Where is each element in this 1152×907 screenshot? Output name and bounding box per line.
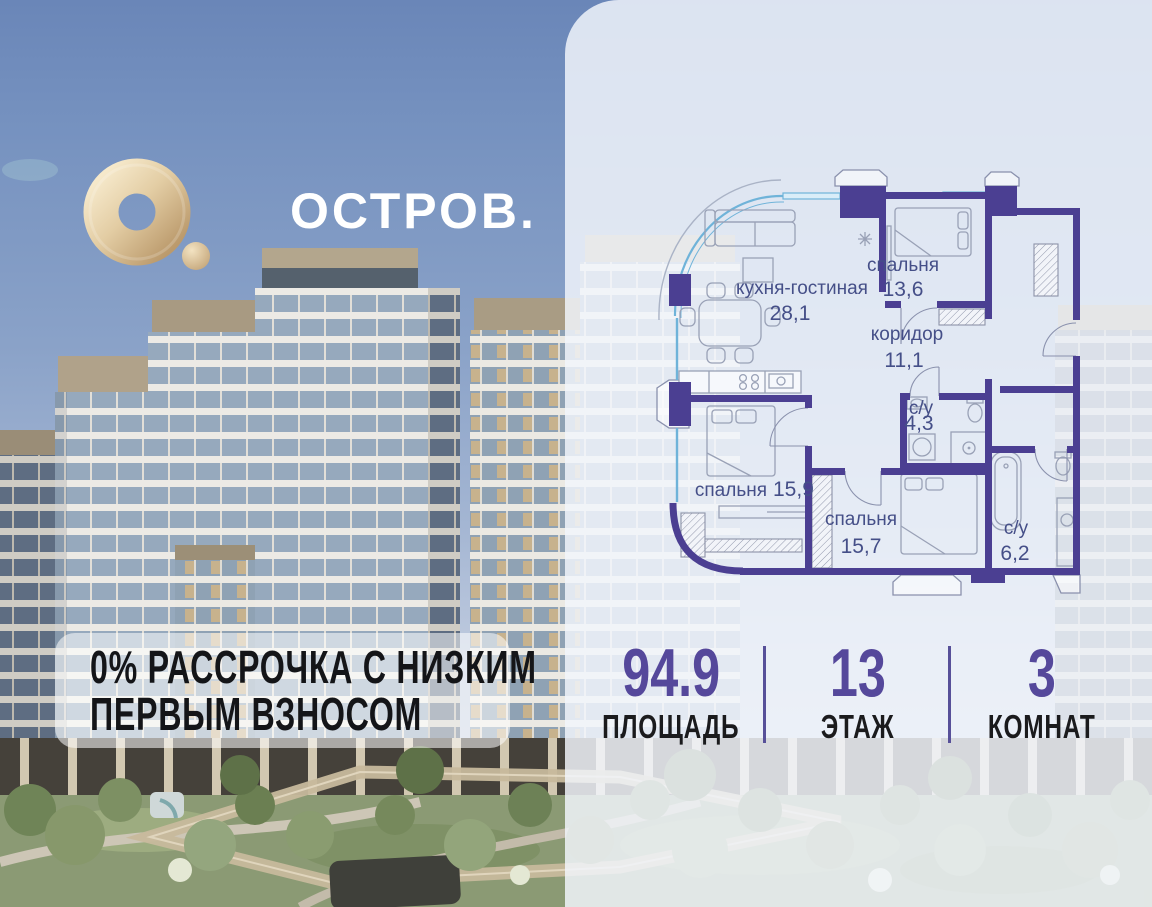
promo-line-1: 0% РАССРОЧКА С НИЗКИМ bbox=[90, 643, 537, 691]
room-area: 15,7 bbox=[841, 535, 882, 558]
stat-rooms: 3 КОМНАТ bbox=[951, 640, 1133, 755]
promo-line-2: ПЕРВЫМ ВЗНОСОМ bbox=[90, 690, 422, 738]
stat-area-value: 94.9 bbox=[622, 640, 720, 706]
room-label: спальня bbox=[695, 480, 767, 501]
stat-floor-label: ЭТАЖ bbox=[821, 709, 894, 745]
room-label: спальня bbox=[825, 509, 897, 530]
stat-floor-value: 13 bbox=[829, 640, 885, 706]
floor-plan: кухня-гостиная 28,1 спальня 13,6 коридор… bbox=[655, 168, 1089, 602]
promo-card: 0% РАССРОЧКА С НИЗКИМ ПЕРВЫМ ВЗНОСОМ bbox=[55, 633, 510, 748]
stats-row: 94.9 ПЛОЩАДЬ 13 ЭТАЖ 3 КОМНАТ bbox=[578, 640, 1133, 755]
room-area: 28,1 bbox=[770, 302, 811, 325]
stat-area: 94.9 ПЛОЩАДЬ bbox=[578, 640, 763, 755]
room-label: спальня bbox=[867, 255, 939, 276]
logo-text: ОСТРОВ. bbox=[290, 182, 537, 240]
room-area: 13,6 bbox=[883, 278, 924, 301]
room-area: 11,1 bbox=[884, 349, 923, 372]
stat-rooms-value: 3 bbox=[1028, 640, 1056, 706]
stat-floor: 13 ЭТАЖ bbox=[766, 640, 948, 755]
stat-area-label: ПЛОЩАДЬ bbox=[602, 709, 739, 745]
logo-ring-icon bbox=[82, 156, 222, 276]
stat-rooms-label: КОМНАТ bbox=[988, 709, 1096, 745]
room-label: кухня-гостиная bbox=[736, 278, 868, 299]
room-area: 6,2 bbox=[1000, 542, 1029, 565]
room-label: коридор bbox=[871, 324, 944, 345]
room-area: 4,3 bbox=[904, 412, 933, 435]
room-area: 15,9 bbox=[773, 478, 814, 501]
room-label: с/у bbox=[1004, 518, 1029, 539]
